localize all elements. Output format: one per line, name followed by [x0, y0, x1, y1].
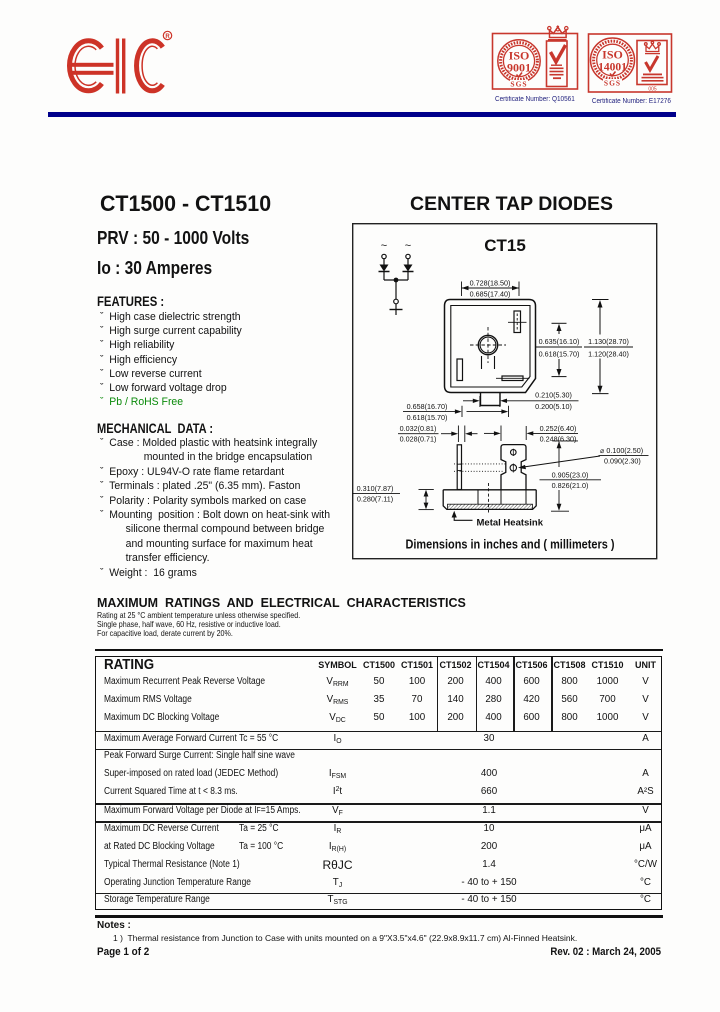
- svg-text:14001: 14001: [598, 62, 627, 74]
- svg-text:ISO: ISO: [602, 48, 623, 62]
- svg-text:Metal Heatsink: Metal Heatsink: [477, 518, 544, 529]
- svg-text:0.090(2.30): 0.090(2.30): [604, 456, 641, 465]
- svg-text:9001: 9001: [507, 61, 531, 75]
- svg-text:0.200(5.10): 0.200(5.10): [535, 402, 572, 411]
- svg-text:0.028(0.71): 0.028(0.71): [400, 435, 437, 444]
- svg-text:0.310(7.87): 0.310(7.87): [357, 484, 394, 493]
- svg-text:0.252(6.40): 0.252(6.40): [540, 424, 577, 433]
- svg-text:1.120(28.40): 1.120(28.40): [588, 350, 629, 359]
- svg-text:1.130(28.70): 1.130(28.70): [588, 337, 629, 346]
- svg-text:CT15: CT15: [484, 236, 526, 255]
- svg-text:0.685(17.40): 0.685(17.40): [470, 290, 511, 299]
- svg-text:0.210(5.30): 0.210(5.30): [535, 390, 572, 399]
- svg-text:005: 005: [648, 87, 657, 93]
- svg-text:0.635(16.10): 0.635(16.10): [539, 337, 580, 346]
- svg-text:SGS: SGS: [604, 79, 621, 88]
- svg-text:0.280(7.11): 0.280(7.11): [357, 495, 393, 504]
- svg-text:0.248(6.30): 0.248(6.30): [540, 434, 577, 443]
- svg-text:~: ~: [381, 240, 387, 252]
- svg-text:0.826(21.0): 0.826(21.0): [552, 481, 589, 490]
- svg-text:0.658(16.70): 0.658(16.70): [407, 402, 448, 411]
- svg-text:SGS: SGS: [510, 80, 527, 89]
- svg-text:0.728(18.50): 0.728(18.50): [470, 279, 511, 288]
- svg-text:0.032(0.81): 0.032(0.81): [400, 424, 437, 433]
- svg-text:0.618(15.70): 0.618(15.70): [407, 413, 448, 422]
- svg-text:0.905(23.0): 0.905(23.0): [552, 470, 589, 479]
- svg-text:R: R: [165, 34, 170, 40]
- svg-text:⌀ 0.100(2.50): ⌀ 0.100(2.50): [600, 446, 643, 455]
- svg-text:Dimensions in inches and ( mil: Dimensions in inches and ( millimeters ): [406, 537, 615, 552]
- svg-text:0.618(15.70): 0.618(15.70): [539, 350, 580, 359]
- svg-text:~: ~: [405, 240, 411, 252]
